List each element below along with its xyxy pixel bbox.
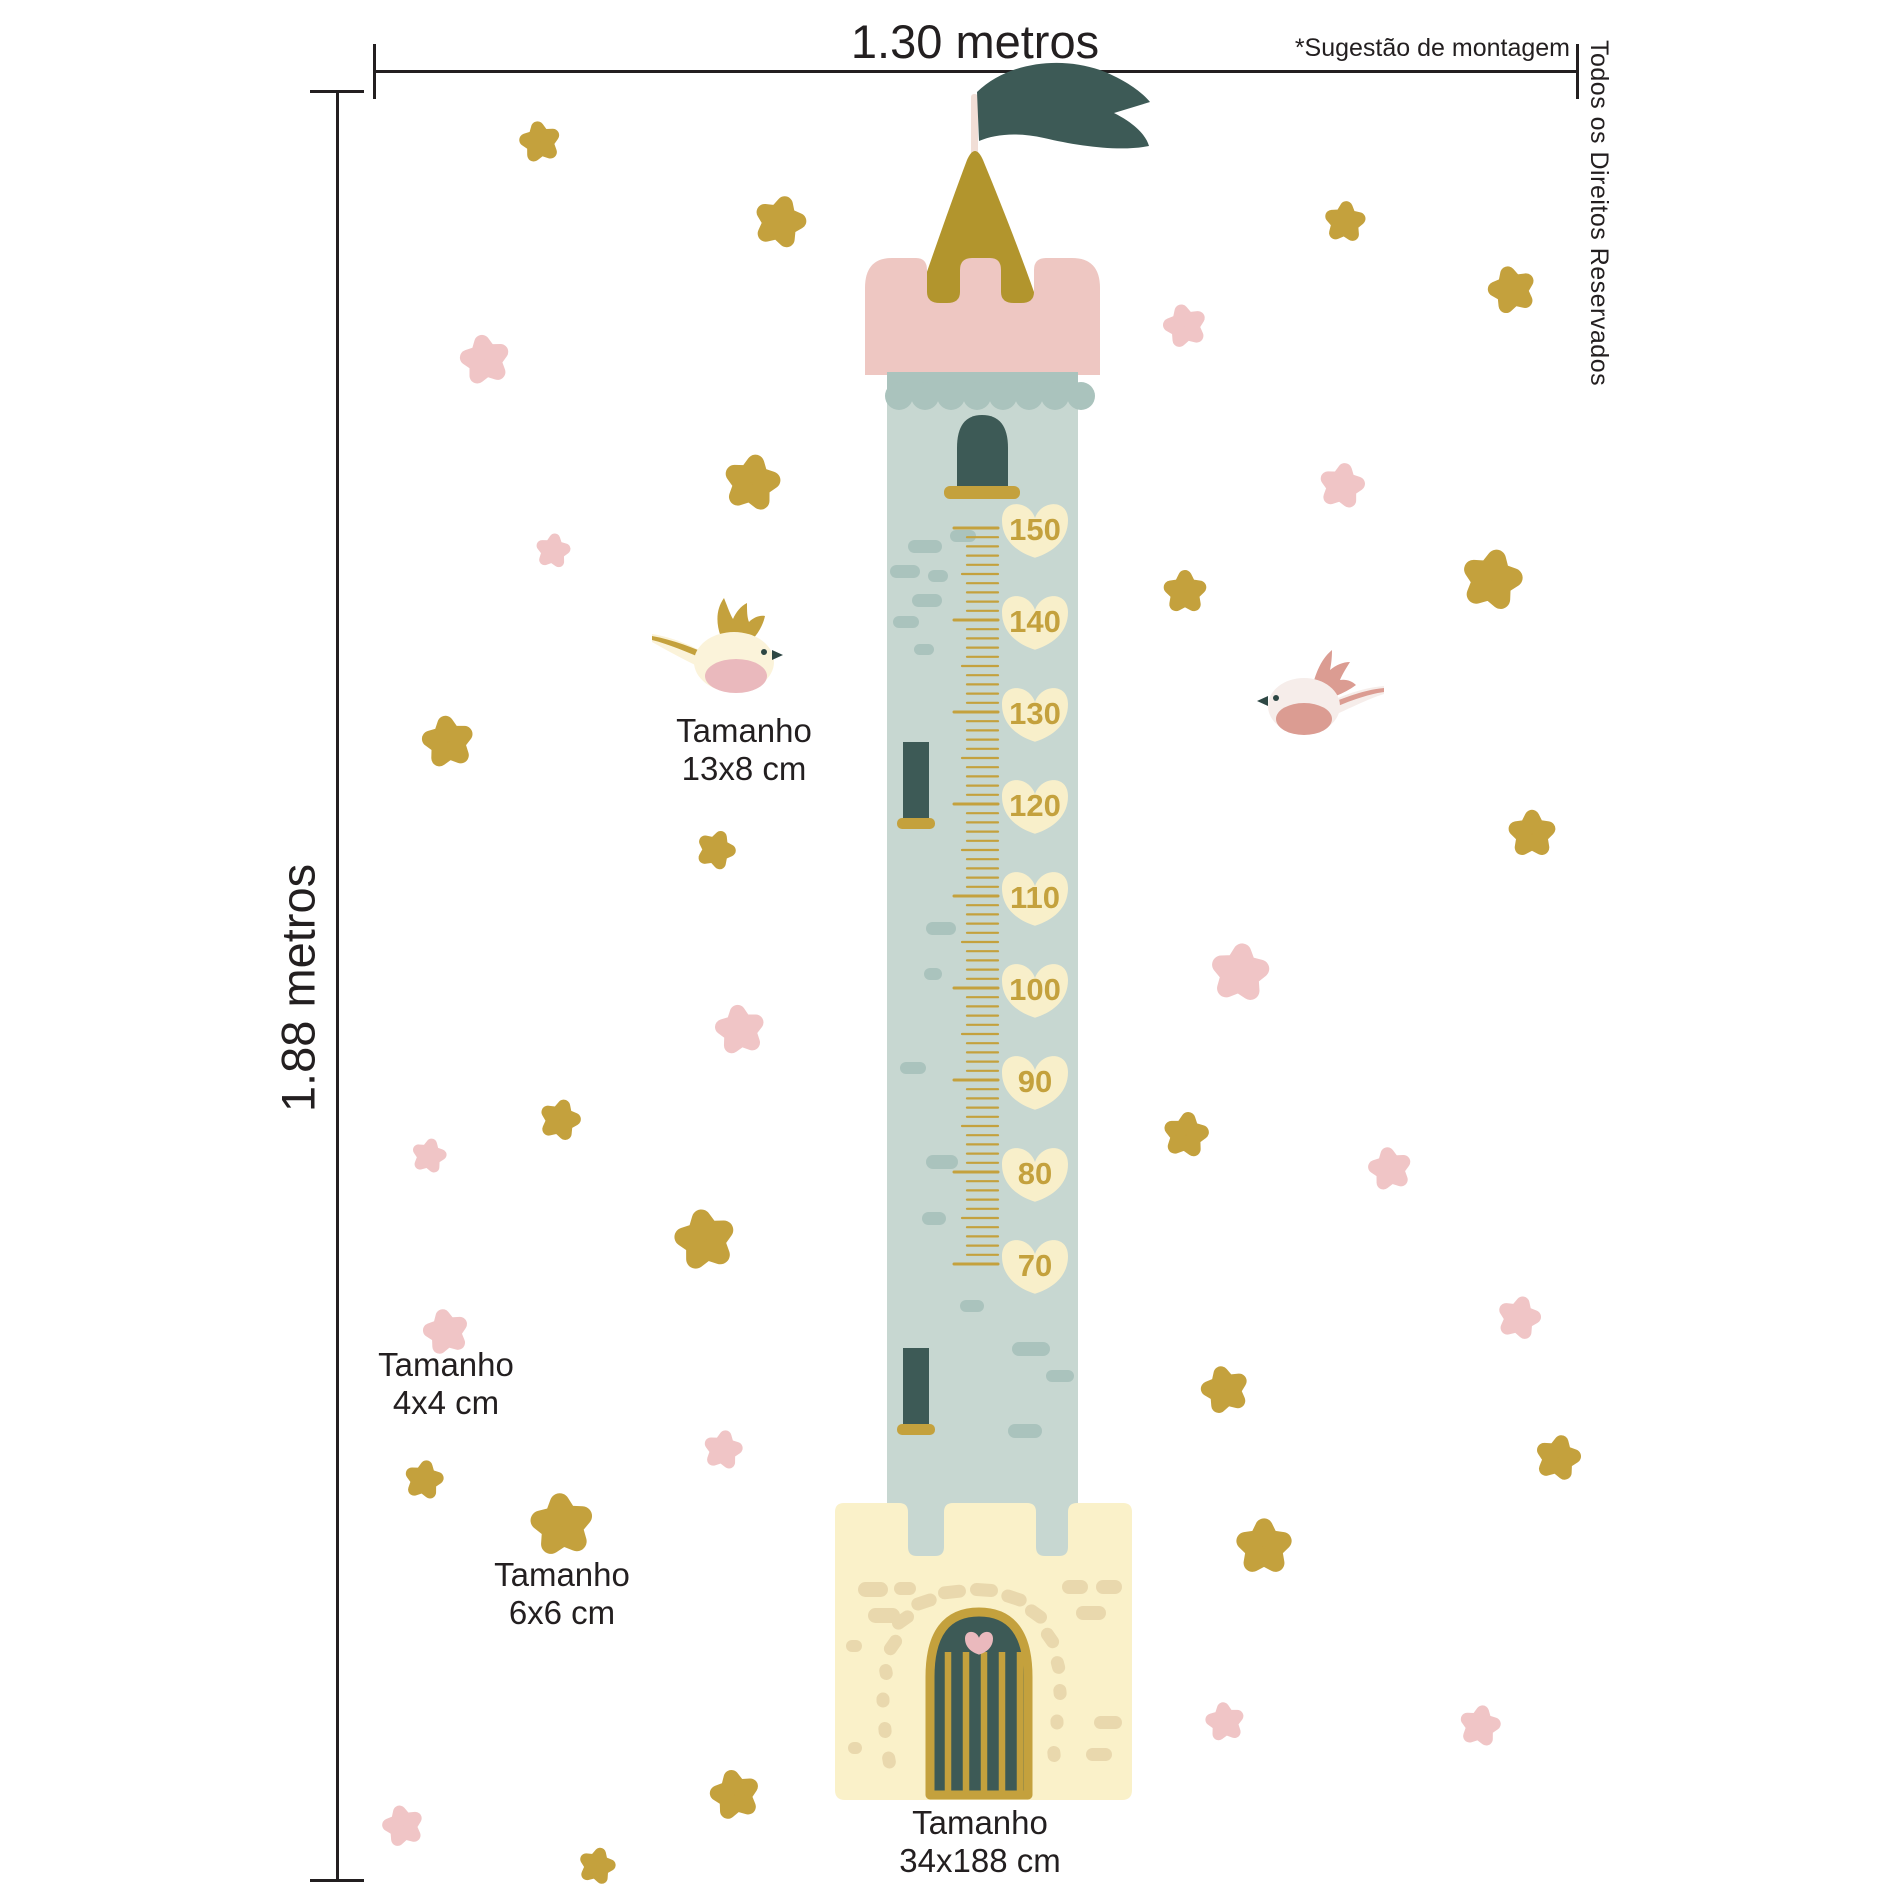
gold-star-icon xyxy=(1171,577,1200,605)
height-value: 140 xyxy=(1009,604,1061,639)
gold-star-icon xyxy=(409,1464,439,1493)
height-value: 70 xyxy=(1018,1248,1052,1283)
scallop xyxy=(885,382,913,410)
brick xyxy=(900,1062,926,1074)
height-value: 90 xyxy=(1018,1064,1052,1099)
pink-star-icon xyxy=(1167,308,1202,342)
brick xyxy=(1008,1424,1042,1438)
height-value: 110 xyxy=(1010,880,1060,915)
lower-window xyxy=(903,1348,929,1428)
pink-star-icon xyxy=(721,1010,758,1046)
brick xyxy=(924,968,942,980)
gold-star-icon xyxy=(583,1851,613,1880)
pink-star-icon xyxy=(1373,1152,1406,1184)
gold-star-icon xyxy=(1492,270,1531,307)
brick xyxy=(1046,1370,1074,1382)
scallop xyxy=(1041,382,1069,410)
brick xyxy=(893,616,919,628)
gold-bird-eye xyxy=(761,649,767,655)
height-value: 100 xyxy=(1009,972,1061,1007)
castle-tower-sticker: 150140130120110100908070 xyxy=(835,63,1150,1800)
bird-size-title: Tamanho xyxy=(634,712,854,750)
mid-window-sill xyxy=(897,818,935,829)
scallop xyxy=(989,382,1017,410)
gold-star-icon xyxy=(1169,1117,1203,1150)
arch-stone xyxy=(970,1583,999,1598)
pink-star-icon xyxy=(1325,468,1360,502)
pink-star-icon xyxy=(1210,1707,1239,1735)
gold-star-icon xyxy=(1540,1439,1576,1474)
base-stone xyxy=(894,1582,916,1595)
tower-size-title: Tamanho xyxy=(860,1804,1100,1842)
flag-pole xyxy=(971,94,978,156)
brick xyxy=(922,1212,946,1225)
bird-size-label: Tamanho 13x8 cm xyxy=(634,712,854,788)
pink-star-icon xyxy=(386,1809,419,1841)
brick xyxy=(960,1300,984,1312)
base-stone xyxy=(858,1582,888,1597)
base-stone xyxy=(848,1742,862,1754)
mid-window xyxy=(903,742,929,822)
base-stone xyxy=(1062,1580,1088,1594)
brick xyxy=(926,1155,958,1169)
brick xyxy=(890,565,920,578)
pink-bird-eye xyxy=(1273,695,1279,701)
large-star-size-label: Tamanho 6x6 cm xyxy=(452,1556,672,1632)
gold-star-icon xyxy=(544,1103,577,1135)
height-marker-hearts: 150140130120110100908070 xyxy=(1002,504,1068,1294)
base-stone xyxy=(1096,1580,1122,1594)
small-star-size-title: Tamanho xyxy=(336,1346,556,1384)
scallop xyxy=(1015,382,1043,410)
large-star-size-value: 6x6 cm xyxy=(452,1594,672,1632)
base-stone xyxy=(846,1640,862,1652)
pink-bird-belly xyxy=(1276,703,1332,735)
scallop xyxy=(937,382,965,410)
small-star-size-value: 4x4 cm xyxy=(336,1384,556,1422)
base-stone xyxy=(1076,1606,1106,1620)
height-value: 120 xyxy=(1009,788,1061,823)
gold-star-icon xyxy=(1330,206,1360,234)
brick xyxy=(926,922,956,935)
turret xyxy=(865,258,1100,375)
arch-stone xyxy=(876,1692,890,1707)
pink-star-icon xyxy=(428,1313,464,1348)
pink-bird-beak xyxy=(1257,696,1268,706)
brick xyxy=(914,644,934,655)
arch-stone xyxy=(1050,1714,1064,1729)
gold-bird-sticker xyxy=(652,598,783,693)
pink-star-icon xyxy=(1219,951,1262,992)
upper-window xyxy=(957,415,1008,487)
bird-size-value: 13x8 cm xyxy=(634,750,854,788)
sticker-artwork: 150140130120110100908070 xyxy=(0,0,1900,1900)
flag-icon xyxy=(977,63,1150,149)
gold-bird-belly xyxy=(705,659,767,693)
pink-star-icon xyxy=(1502,1300,1537,1334)
base-stone xyxy=(1086,1748,1112,1761)
brick xyxy=(950,530,976,542)
brick xyxy=(912,594,942,607)
gold-star-icon xyxy=(681,1216,727,1261)
pink-bird-sticker xyxy=(1257,650,1384,735)
gold-star-icon xyxy=(428,722,467,759)
gold-star-icon xyxy=(759,200,801,241)
pink-star-icon xyxy=(708,1434,738,1463)
tower-size-label: Tamanho 34x188 cm xyxy=(860,1804,1100,1880)
tower-size-value: 34x188 cm xyxy=(860,1842,1100,1880)
pink-star-icon xyxy=(416,1142,443,1168)
gold-star-icon xyxy=(715,1774,754,1812)
upper-window-sill xyxy=(944,486,1020,499)
gold-star-icon xyxy=(1516,817,1548,847)
pink-star-icon xyxy=(1464,1709,1496,1739)
pink-star-icon xyxy=(540,537,566,562)
base-stone xyxy=(1094,1716,1122,1729)
height-value: 130 xyxy=(1009,696,1061,731)
large-star-size-title: Tamanho xyxy=(452,1556,672,1594)
small-star-size-label: Tamanho 4x4 cm xyxy=(336,1346,556,1422)
scallop xyxy=(1067,382,1095,410)
pink-star-icon xyxy=(466,340,504,377)
gold-star-icon xyxy=(1469,555,1517,601)
brick xyxy=(928,570,948,582)
gold-star-icon xyxy=(731,460,774,502)
brick xyxy=(908,540,942,553)
sticker-mockup-sheet: 1.30 metros 1.88 metros *Sugestão de mon… xyxy=(0,0,1900,1900)
height-value: 150 xyxy=(1009,512,1061,547)
gold-star-icon xyxy=(700,833,733,865)
gold-bird-beak xyxy=(772,650,783,660)
lower-window-sill xyxy=(897,1424,935,1435)
height-value: 80 xyxy=(1018,1156,1052,1191)
brick xyxy=(1012,1342,1050,1356)
scallop xyxy=(911,382,939,410)
scallop xyxy=(963,382,991,410)
gold-star-icon xyxy=(1245,1527,1283,1563)
gold-star-icon xyxy=(1206,1370,1244,1407)
gold-star-icon xyxy=(539,1501,585,1545)
gold-star-icon xyxy=(524,125,556,155)
